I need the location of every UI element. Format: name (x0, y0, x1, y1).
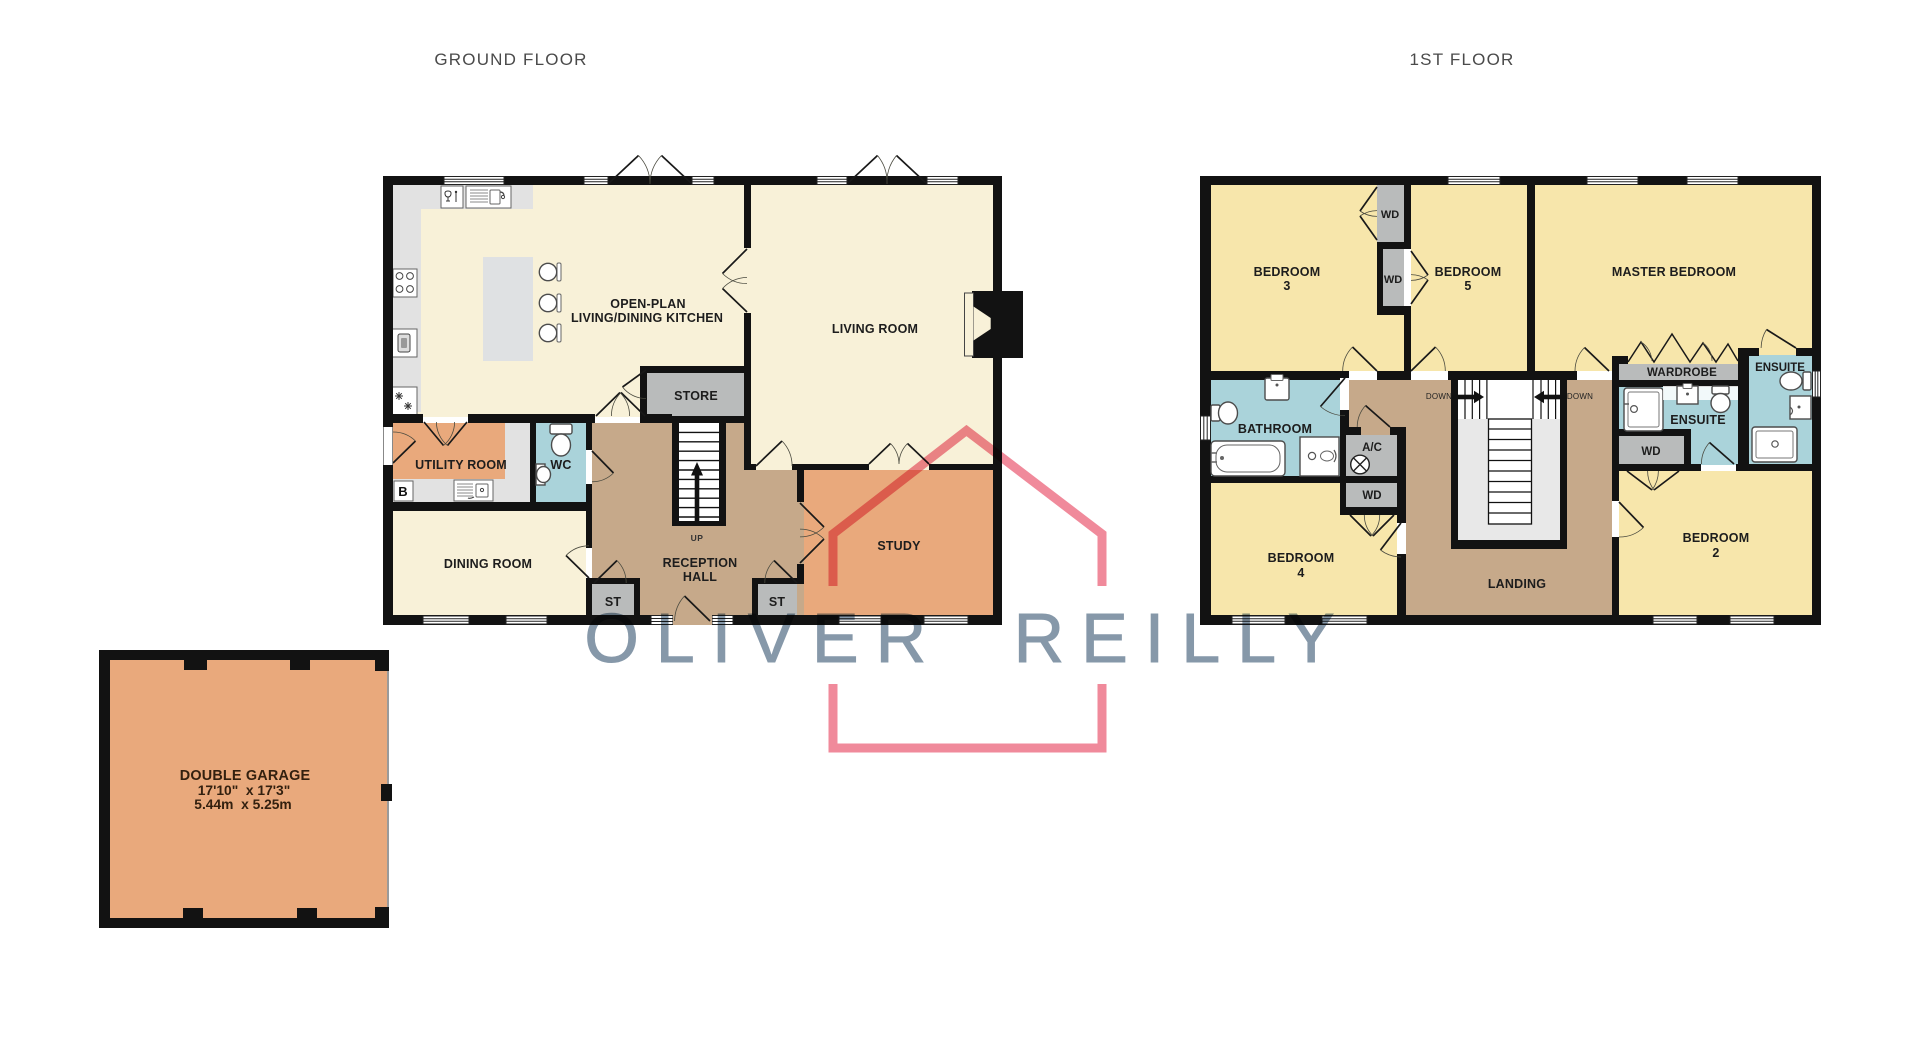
svg-text:DOWN: DOWN (1426, 392, 1452, 401)
svg-text:2: 2 (1712, 546, 1719, 560)
svg-text:STORE: STORE (674, 389, 718, 403)
svg-text:B: B (398, 484, 407, 499)
svg-text:ENSUITE: ENSUITE (1755, 362, 1805, 374)
svg-text:DOUBLE GARAGE: DOUBLE GARAGE (180, 768, 311, 784)
svg-text:DOWN: DOWN (1567, 392, 1593, 401)
svg-text:1ST FLOOR: 1ST FLOOR (1410, 50, 1515, 69)
svg-text:5.44m x 5.25m: 5.44m x 5.25m (194, 797, 291, 812)
svg-text:A/C: A/C (1362, 442, 1382, 454)
svg-text:LIVING/DINING KITCHEN: LIVING/DINING KITCHEN (571, 311, 723, 325)
svg-text:GROUND FLOOR: GROUND FLOOR (434, 50, 587, 69)
svg-text:BEDROOM: BEDROOM (1254, 265, 1321, 279)
svg-text:UP: UP (691, 533, 704, 543)
svg-text:BEDROOM: BEDROOM (1268, 551, 1335, 565)
svg-text:17'10" x 17'3": 17'10" x 17'3" (198, 783, 291, 798)
svg-text:ENSUITE: ENSUITE (1670, 413, 1726, 427)
svg-text:3: 3 (1283, 279, 1290, 293)
svg-text:OLIVER REILLY: OLIVER REILLY (584, 599, 1351, 677)
svg-text:LANDING: LANDING (1488, 577, 1546, 591)
svg-text:STUDY: STUDY (877, 539, 921, 553)
svg-text:4: 4 (1297, 566, 1304, 580)
svg-text:DINING ROOM: DINING ROOM (444, 557, 532, 571)
svg-text:UTILITY ROOM: UTILITY ROOM (415, 458, 507, 472)
svg-text:MASTER BEDROOM: MASTER BEDROOM (1612, 265, 1736, 279)
svg-text:OPEN-PLAN: OPEN-PLAN (610, 297, 685, 311)
svg-text:BEDROOM: BEDROOM (1435, 265, 1502, 279)
svg-text:LIVING ROOM: LIVING ROOM (832, 322, 918, 336)
svg-text:RECEPTION: RECEPTION (663, 556, 738, 570)
svg-text:BEDROOM: BEDROOM (1683, 531, 1750, 545)
svg-text:5: 5 (1464, 279, 1471, 293)
svg-text:WC: WC (550, 458, 571, 472)
svg-text:WD: WD (1381, 209, 1399, 221)
svg-text:WD: WD (1641, 446, 1660, 458)
svg-text:BATHROOM: BATHROOM (1238, 422, 1312, 436)
svg-text:WARDROBE: WARDROBE (1647, 367, 1717, 379)
svg-text:HALL: HALL (683, 570, 717, 584)
svg-text:WD: WD (1384, 274, 1402, 286)
svg-text:WD: WD (1362, 490, 1381, 502)
